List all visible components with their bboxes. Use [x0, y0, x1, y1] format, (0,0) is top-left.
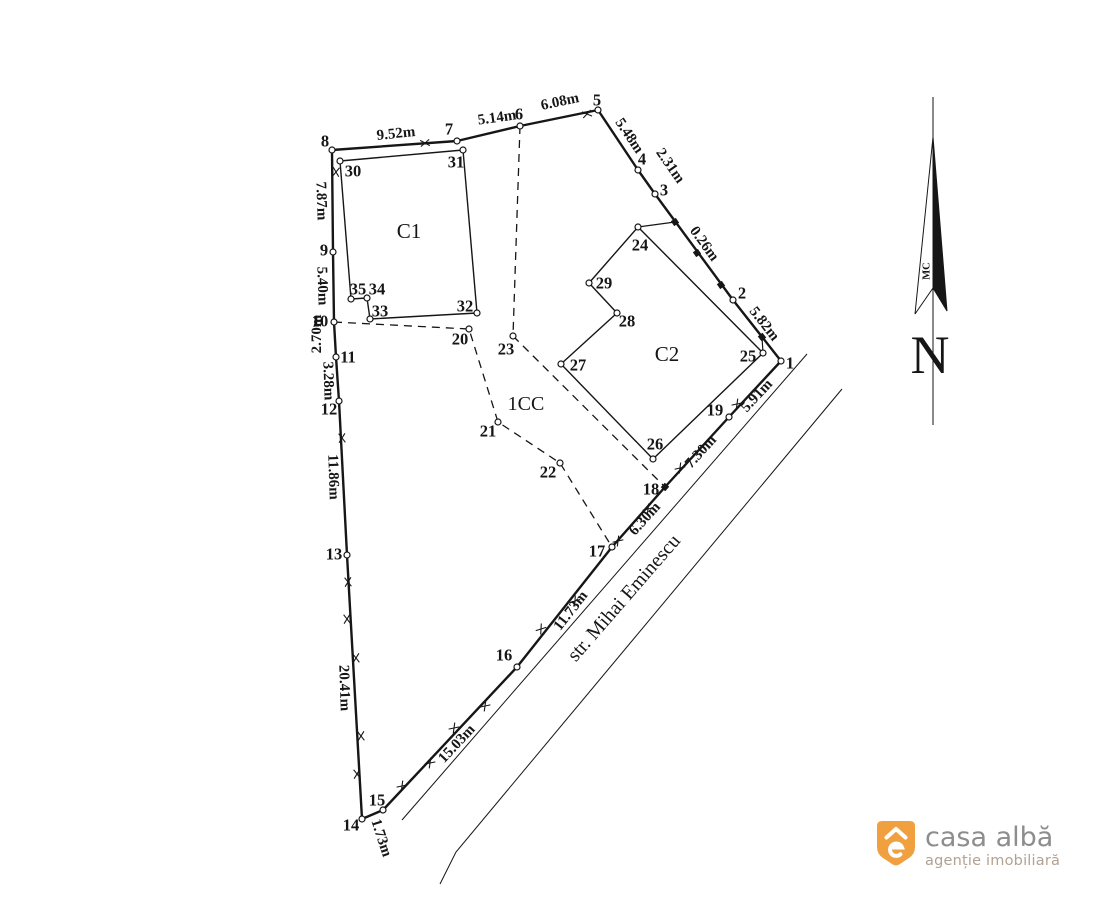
measurement-label-6-30m: 6.30m [626, 499, 664, 539]
survey-point-23 [510, 333, 516, 339]
logo-text-block: casa albă agenție imobiliară [925, 820, 1060, 869]
survey-point-25 [760, 350, 766, 356]
tick-mark-12 [453, 723, 455, 734]
point-label-31: 31 [448, 153, 465, 172]
survey-point-6 [517, 123, 523, 129]
tick-mark-14 [541, 624, 542, 635]
agency-logo: casa albă agenție imobiliară [876, 820, 1060, 869]
tick-mark-3 [333, 167, 339, 177]
point-label-25: 25 [740, 347, 757, 366]
measurement-label-6-08m: 6.08m [539, 90, 581, 114]
logo-title: casa albă [925, 824, 1060, 851]
north-needle-filled-half [933, 137, 947, 311]
plan-drawing: 1234567891011121314151617181920212223242… [0, 0, 1115, 903]
point-label-17: 17 [589, 542, 606, 561]
point-label-16: 16 [496, 646, 513, 665]
survey-point-16 [514, 664, 520, 670]
measurement-label-2-31m: 2.31m [652, 146, 688, 187]
point-label-18: 18 [643, 480, 660, 499]
measurement-label-1-73m: 1.73m [367, 817, 394, 859]
point-label-33: 33 [372, 302, 389, 321]
measurement-label-5-14m: 5.14m [477, 107, 518, 128]
point-label-20: 20 [452, 330, 469, 349]
point-label-27: 27 [570, 356, 587, 375]
survey-point-29 [586, 280, 592, 286]
measurement-label-7-87m: 7.87m [312, 181, 329, 221]
point-label-11: 11 [340, 348, 356, 367]
building-label-c1: C1 [397, 219, 422, 243]
building-label-c2: C2 [655, 342, 680, 366]
point-label-8: 8 [321, 132, 329, 151]
point-label-23: 23 [498, 340, 515, 359]
measurement-label-11-86m: 11.86m [324, 454, 342, 500]
point-label-24: 24 [632, 236, 649, 255]
point-label-26: 26 [647, 435, 664, 454]
measurement-label-3-28m: 3.28m [319, 361, 336, 401]
zone-label-1cc: 1CC [508, 393, 545, 415]
tie-line-1 [638, 222, 675, 227]
point-label-29: 29 [596, 274, 613, 293]
point-label-30: 30 [345, 162, 362, 181]
survey-point-10 [331, 319, 337, 325]
survey-point-2 [730, 297, 736, 303]
north-letter: N [911, 325, 950, 385]
point-label-14: 14 [343, 816, 360, 835]
point-label-7: 7 [445, 120, 453, 139]
point-label-22: 22 [540, 463, 557, 482]
point-label-3: 3 [660, 181, 668, 200]
measurement-label-5-40m: 5.40m [313, 266, 330, 306]
survey-point-8 [329, 147, 335, 153]
casa-alba-house-icon [876, 820, 916, 866]
point-label-35: 35 [350, 280, 367, 299]
measurement-label-2-70m: 2.70m [309, 314, 325, 353]
survey-point-9 [330, 249, 336, 255]
parcel-boundary [332, 110, 781, 819]
survey-point-11 [333, 354, 339, 360]
point-label-5: 5 [593, 91, 601, 110]
survey-point-22 [557, 460, 563, 466]
survey-point-7 [454, 138, 460, 144]
survey-point-13 [344, 552, 350, 558]
point-label-1: 1 [786, 354, 794, 373]
survey-point-14 [359, 816, 365, 822]
point-label-28: 28 [619, 312, 636, 331]
point-label-9: 9 [320, 241, 328, 260]
point-label-19: 19 [707, 401, 724, 420]
street-edge-line-2 [440, 389, 842, 884]
north-needle-open-half [915, 137, 933, 314]
survey-point-26 [650, 456, 656, 462]
street-edge-line-1 [402, 354, 807, 820]
logo-subtitle: agenție imobiliară [925, 854, 1060, 869]
survey-point-27 [558, 361, 564, 367]
measurement-label-7-30m: 7.30m [682, 432, 720, 472]
point-label-13: 13 [326, 545, 343, 564]
survey-point-17 [609, 544, 615, 550]
point-label-21: 21 [480, 422, 497, 441]
north-mc-label: MC [922, 262, 933, 280]
point-label-12: 12 [321, 400, 338, 419]
point-label-32: 32 [457, 297, 474, 316]
survey-point-19 [726, 414, 732, 420]
survey-point-30 [337, 158, 343, 164]
tick-mark-16 [617, 536, 618, 547]
measurement-label-9-52m: 9.52m [376, 124, 417, 144]
dashed-boundary-1 [513, 126, 520, 336]
survey-point-24 [635, 224, 641, 230]
survey-point-32 [474, 310, 480, 316]
point-label-34: 34 [369, 280, 386, 299]
point-label-2: 2 [738, 284, 746, 303]
survey-point-1 [778, 358, 784, 364]
point-label-15: 15 [369, 791, 386, 810]
measurement-label-20-41m: 20.41m [335, 665, 353, 712]
measurement-label-15-03m: 15.03m [435, 721, 479, 766]
survey-point-3 [652, 191, 658, 197]
